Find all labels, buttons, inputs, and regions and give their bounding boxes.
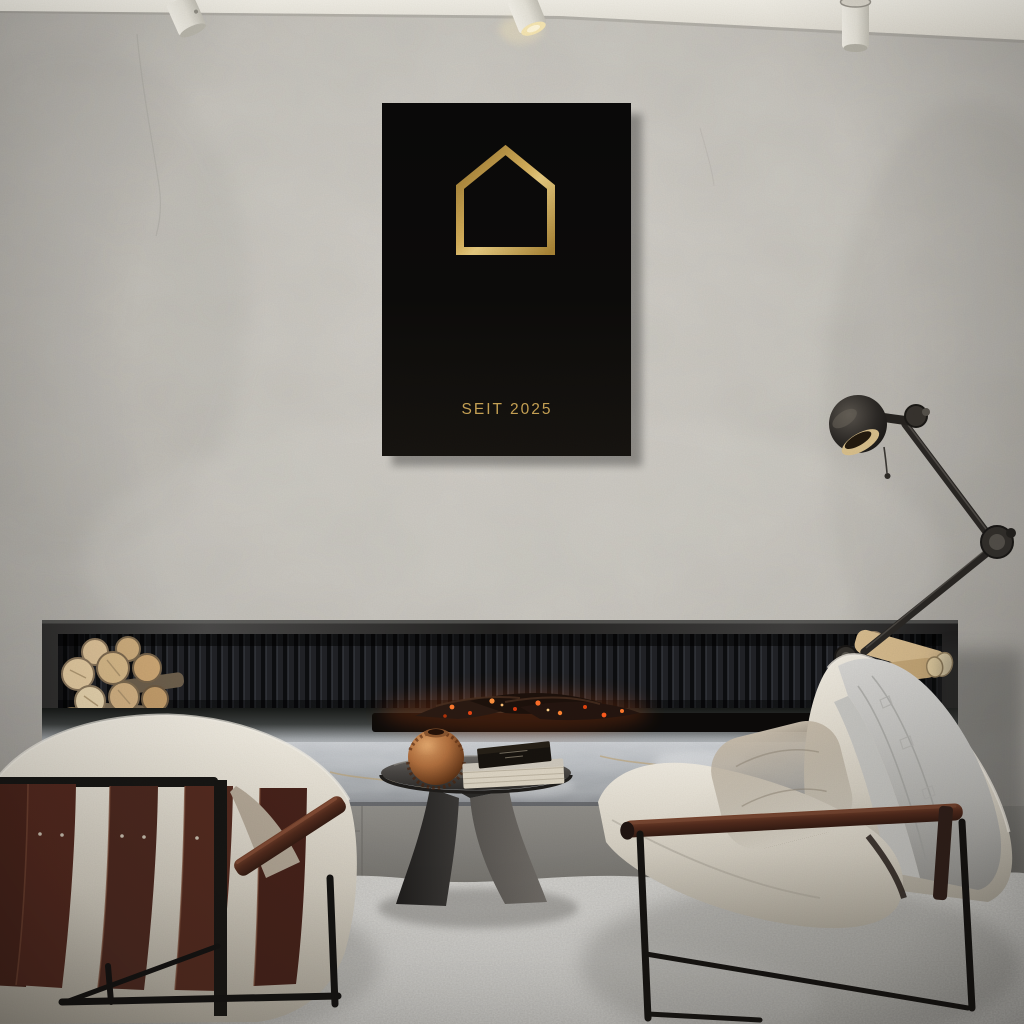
living-room-photo: SEIT 2025 <box>0 0 1024 1024</box>
scene-canvas: SEIT 2025 <box>0 0 1024 1024</box>
photo-grain <box>0 0 1024 1024</box>
